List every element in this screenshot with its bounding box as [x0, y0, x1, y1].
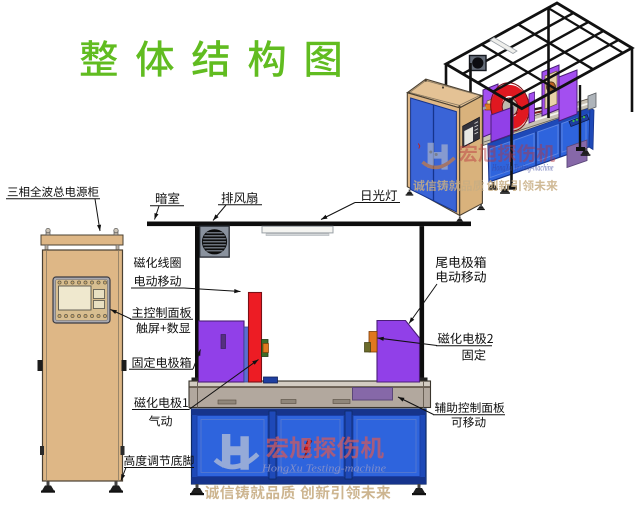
svg-text:HongXu Testing-machine: HongXu Testing-machine: [491, 163, 553, 173]
svg-text:HongXu Testing-machine: HongXu Testing-machine: [261, 464, 387, 475]
